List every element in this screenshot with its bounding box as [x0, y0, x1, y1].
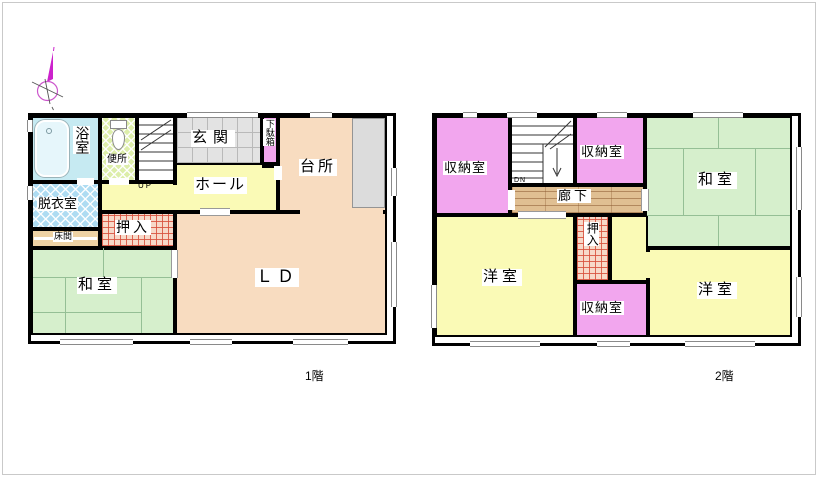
tatami-line — [141, 277, 142, 333]
room-western-right-notch-2f — [610, 215, 648, 282]
kitchen-ld-open-patch — [300, 208, 383, 216]
window — [693, 112, 743, 118]
stairs-up-icon — [137, 116, 175, 182]
window — [187, 112, 258, 118]
tatami-line — [718, 118, 719, 148]
storage-left-door-gap — [508, 190, 515, 210]
window — [293, 339, 348, 345]
kitchen-counter — [352, 118, 385, 208]
north-compass-icon — [28, 46, 70, 112]
room-label-storage-bottom: 収納室 — [580, 301, 624, 315]
hall-join-patch — [171, 185, 179, 210]
floor2-plan: 収納室 収納室 和室 廊下 押入 収納室 洋室 洋室 DN — [432, 113, 801, 346]
hall-ld-sliding-door — [200, 208, 230, 216]
window — [597, 341, 630, 347]
room-label-corridor: 廊下 — [557, 189, 591, 203]
window — [27, 186, 33, 200]
corridor-western-sliding-door — [518, 211, 566, 219]
window — [463, 112, 477, 118]
tatami-line — [65, 277, 66, 333]
stairs-up-label: UP — [137, 182, 154, 191]
room-label-storage-top: 収納室 — [580, 145, 624, 159]
ld-washitsu-sliding-door — [171, 250, 178, 278]
room-label-closet-1f: 押入 — [115, 220, 151, 235]
floor2-caption: 2階 — [715, 367, 734, 384]
window — [507, 112, 537, 118]
western-right-join-patch — [644, 252, 652, 278]
window — [431, 316, 437, 328]
floor1-caption: 1階 — [305, 367, 324, 384]
window — [796, 277, 802, 317]
room-label-closet-2f: 押入 — [584, 222, 599, 246]
room-label-shoe-cabinet: 下駄箱 — [263, 119, 275, 146]
room-label-dressing: 脱衣室 — [37, 197, 78, 211]
toilet-door-gap — [109, 178, 129, 185]
window — [796, 147, 802, 210]
room-label-bath: 浴室 — [73, 126, 90, 154]
tatami-line — [33, 312, 141, 313]
room-label-toilet: 便所 — [106, 154, 128, 165]
window — [60, 339, 133, 345]
room-label-entrance: 玄関 — [191, 130, 235, 147]
window — [27, 120, 33, 132]
room-label-western-left: 洋室 — [482, 269, 522, 286]
room-label-storage-left: 収納室 — [443, 161, 487, 175]
window — [190, 339, 232, 345]
room-label-hall: ホール — [194, 177, 247, 194]
window — [391, 168, 397, 196]
tatami-line — [755, 148, 756, 215]
bath-door-gap — [77, 178, 94, 185]
window — [470, 341, 540, 347]
window — [431, 285, 437, 320]
window — [310, 112, 332, 118]
window — [597, 112, 627, 118]
bathtub-drain-icon — [46, 128, 52, 134]
tatami-line — [647, 148, 790, 149]
room-label-tokonoma: 床間 — [53, 232, 73, 242]
toilet-icon — [110, 120, 127, 129]
stairs-down-icon — [510, 116, 575, 185]
room-label-western-right: 洋室 — [697, 282, 737, 299]
room-label-washitsu-1f: 和室 — [77, 277, 117, 294]
room-label-washitsu-2f: 和室 — [697, 172, 737, 189]
window — [685, 341, 755, 347]
floor1-plan: 浴室 便所 玄関 下駄箱 台所 ホール 脱衣室 床間 押入 和室 ＬＤ UP — [28, 113, 396, 344]
tatami-line — [718, 215, 719, 246]
room-label-ld: ＬＤ — [255, 268, 299, 287]
corridor-washitsu-door — [641, 189, 649, 211]
tatami-line — [683, 148, 684, 215]
hall-kitchen-door-gap — [274, 166, 282, 180]
room-label-kitchen: 台所 — [299, 159, 337, 176]
bathtub-icon — [35, 120, 69, 177]
floorplan-canvas: 浴室 便所 玄関 下駄箱 台所 ホール 脱衣室 床間 押入 和室 ＬＤ UP — [0, 0, 818, 477]
window — [391, 242, 397, 307]
stairs-down-label: DN — [513, 177, 527, 185]
tatami-line — [103, 248, 104, 277]
